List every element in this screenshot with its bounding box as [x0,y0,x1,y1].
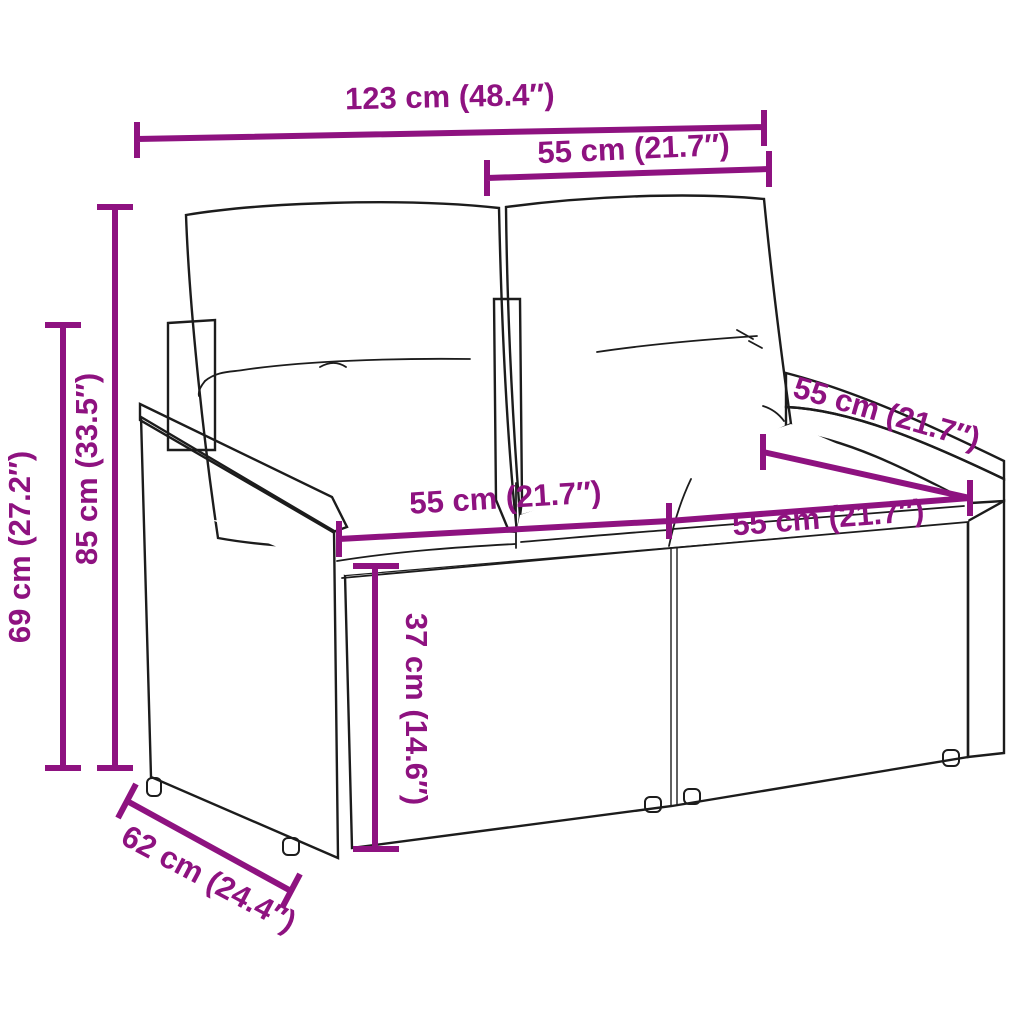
dimension-annotations: 123 cm (48.4″) 55 cm (21.7″) 85 cm (33.5… [2,77,984,940]
base-right-panel [968,501,1004,757]
product-dimension-diagram: 123 cm (48.4″) 55 cm (21.7″) 85 cm (33.5… [0,0,1024,1024]
base-module-seam [671,546,677,806]
dim-seat-height: 37 cm (14.6″) [353,566,434,849]
dim-seat-height-label: 37 cm (14.6″) [399,613,434,805]
dim-armrest-height-label: 69 cm (27.2″) [2,451,37,643]
armrest-left-top [140,404,347,532]
dim-overall-width-label: 123 cm (48.4″) [345,77,555,117]
back-post-left [168,320,215,450]
diagram-canvas: 123 cm (48.4″) 55 cm (21.7″) 85 cm (33.5… [0,0,1024,1024]
dim-back-height-label: 85 cm (33.5″) [69,373,104,565]
armrest-left-face [141,417,338,858]
dim-overall-depth: 62 cm (24.4″) [116,784,302,939]
dim-back-cushion-width: 55 cm (21.7″) [487,127,769,196]
dim-back-cushion-width-label: 55 cm (21.7″) [537,127,731,170]
bench-feet [147,750,959,855]
dim-back-height: 85 cm (33.5″) [69,207,133,768]
